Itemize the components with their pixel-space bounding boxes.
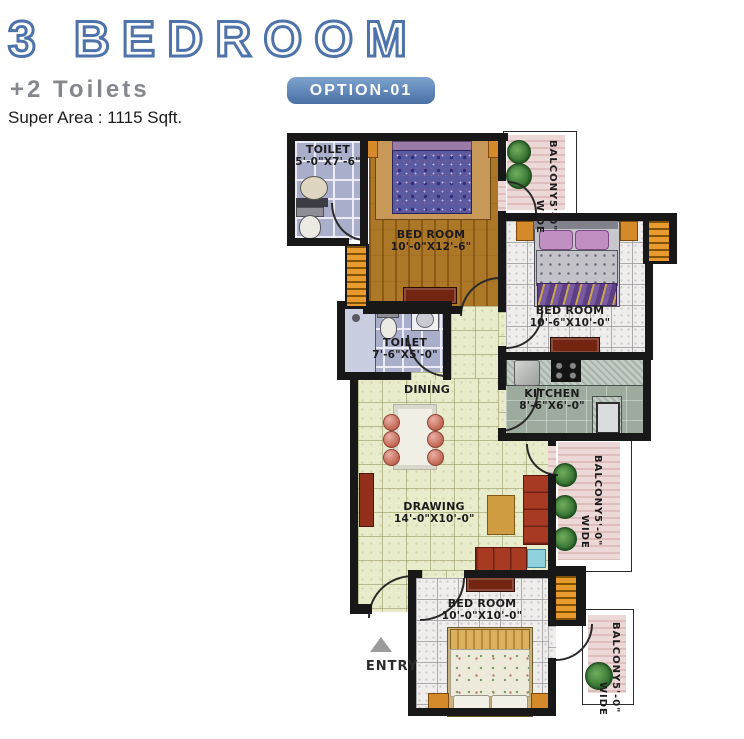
wall-bedroom2-bottom <box>498 352 653 360</box>
label-balcony-top: BALCONY5'-0" WIDE <box>533 140 559 210</box>
wall-bedroom3-right <box>548 658 556 716</box>
window-bedroom1-west <box>345 244 368 308</box>
refrigerator <box>514 360 540 386</box>
wall-drawing-right-b <box>548 474 556 568</box>
entry-arrow-icon <box>370 637 392 652</box>
wall-drawing-right-a <box>548 436 556 446</box>
wall-bedroom1-right-a <box>498 133 506 181</box>
shower-head <box>352 314 360 322</box>
plant <box>553 495 577 519</box>
dining-chair <box>383 431 400 448</box>
bedroom-3-door-threshold <box>422 570 464 578</box>
side-table-blue <box>527 549 546 568</box>
dresser-bedroom3 <box>466 577 515 592</box>
dining-chair <box>383 414 400 431</box>
dining-chair <box>383 449 400 466</box>
wall-bedroom3-top-b <box>464 570 556 578</box>
wall-kitchen-left-b <box>498 428 506 441</box>
label-dining: DINING <box>396 383 458 396</box>
wall-bedroom1-right-b <box>498 211 506 312</box>
page-title: 3 BEDROOM <box>8 10 419 68</box>
coffee-table <box>487 495 515 535</box>
bed-2-blanket <box>537 283 617 306</box>
wall-kitchen-right <box>643 352 651 441</box>
washbasin <box>300 176 328 200</box>
label-bedroom-1: BED ROOM10'-0"X12'-6" <box>388 228 474 254</box>
wall-entry-bottom <box>350 604 372 614</box>
plant <box>507 140 531 164</box>
wall-top <box>287 133 508 141</box>
plant <box>553 527 577 551</box>
super-area-text: Super Area : 1115 Sqft. <box>8 108 182 128</box>
stove <box>551 359 581 382</box>
wall-bedroom2-right-lower <box>645 256 653 360</box>
label-toilet-2: TOILET7'-6"X5'-0" <box>368 336 442 362</box>
wall-living-left <box>350 372 358 612</box>
dining-chair <box>427 414 444 431</box>
bed-2-quilt <box>536 250 618 286</box>
wc-bowl <box>299 215 321 239</box>
window-bedroom3-east <box>554 574 578 622</box>
floorplan-brochure: { "header": { "title": "3 BEDROOM", "sub… <box>0 0 744 739</box>
bed-2-pillow <box>575 230 609 250</box>
balcony-bottom-door-threshold <box>548 626 556 658</box>
bedroom-2-door-threshold <box>498 312 506 346</box>
label-kitchen: KITCHEN8'-6"X6'-0" <box>518 387 586 413</box>
label-balcony-bottom: BALCONY5'-0" WIDE <box>596 622 622 694</box>
label-drawing: DRAWING14'-0"X10'-0" <box>394 500 474 526</box>
balcony-top-door-threshold <box>498 181 506 211</box>
wall-bedroom3-left <box>408 570 416 716</box>
wall-kitchen-bottom <box>498 433 651 441</box>
wall-bedroom3-top-a <box>408 570 422 578</box>
wall-toilet2-right <box>443 303 451 380</box>
entry-label: ENTRY <box>357 659 427 674</box>
wall-toilet2-bottom <box>337 372 411 380</box>
bench-seat <box>359 473 374 527</box>
wall-toilet1-bottom <box>287 238 349 246</box>
option-badge: OPTION-01 <box>287 77 435 104</box>
label-bedroom-2: BED ROOM10'-6"X10'-0" <box>524 304 616 330</box>
nightstand <box>620 221 638 241</box>
label-balcony-mid: BALCONY5'-0" WIDE <box>578 455 604 550</box>
kitchen-sink <box>596 402 620 434</box>
wall-kitchen-left-a <box>498 356 506 390</box>
toilets-subtitle: +2 Toilets <box>10 76 150 104</box>
nightstand <box>516 221 534 241</box>
window-bedroom2-east <box>647 219 671 263</box>
wall-toilet2-left <box>337 303 345 380</box>
bed-3-quilt <box>450 649 530 697</box>
hallway-floor <box>451 306 498 380</box>
dining-chair <box>427 431 444 448</box>
wall-bedroom3-bottom <box>408 708 556 716</box>
bed-1-quilt <box>392 150 472 214</box>
label-toilet-1: TOILET5'-0"X7'-6" <box>293 143 363 169</box>
dining-chair <box>427 449 444 466</box>
label-bedroom-3: BED ROOM10'-0"X10'-0" <box>437 597 527 623</box>
bed-3-blanket <box>450 629 530 651</box>
